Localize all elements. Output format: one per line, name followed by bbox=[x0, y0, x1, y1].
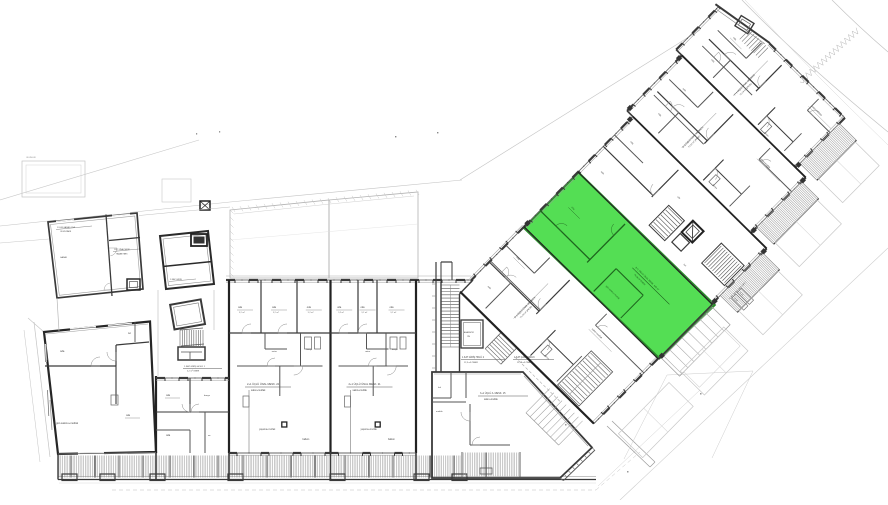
svg-text:2+1 ÜÇLÜ ÜNAL MESK. 22: 2+1 ÜÇLÜ ÜNAL MESK. 22 bbox=[247, 382, 280, 386]
svg-text:oda: oda bbox=[166, 394, 171, 397]
svg-text:12,5 m² ÖMER: 12,5 m² ÖMER bbox=[464, 361, 478, 364]
svg-text:GARAJ: GARAJ bbox=[60, 256, 67, 259]
svg-text:salon+mutfak: salon+mutfak bbox=[251, 389, 266, 392]
svg-text:balkon: balkon bbox=[388, 439, 395, 441]
svg-text:banyo: banyo bbox=[392, 349, 399, 351]
svg-text:balkon: balkon bbox=[303, 439, 310, 441]
svg-text:oda: oda bbox=[166, 434, 171, 437]
svg-text:oda: oda bbox=[390, 306, 395, 309]
svg-text:9,2 m²: 9,2 m² bbox=[362, 311, 368, 314]
svg-text:banyo: banyo bbox=[204, 395, 211, 397]
svg-text:9,2 m²: 9,2 m² bbox=[391, 311, 397, 314]
svg-text:yaşama+mutfak: yaşama+mutfak bbox=[361, 428, 378, 431]
svg-text:ODUNLUK: ODUNLUK bbox=[26, 157, 36, 159]
svg-text:gün.salonu+mutfak: gün.salonu+mutfak bbox=[56, 421, 79, 425]
svg-text:oda: oda bbox=[361, 306, 366, 309]
svg-text:2+1 ÜÇLÜ ÜNAL MESK. 21: 2+1 ÜÇLÜ ÜNAL MESK. 21 bbox=[349, 382, 382, 386]
svg-text:salon+mutfak: salon+mutfak bbox=[484, 398, 499, 401]
svg-text:1.KAT GİRİŞ HOLÜ 1: 1.KAT GİRİŞ HOLÜ 1 bbox=[184, 365, 206, 368]
svg-text:9,2 m²: 9,2 m² bbox=[239, 311, 245, 314]
svg-text:mutfak: mutfak bbox=[436, 410, 443, 413]
svg-text:hol: hol bbox=[438, 387, 441, 389]
svg-text:YAŞAM PARS: YAŞAM PARS bbox=[116, 253, 128, 256]
svg-text:antre: antre bbox=[272, 350, 278, 353]
svg-text:5,2 m² ÖMER: 5,2 m² ÖMER bbox=[187, 370, 200, 373]
svg-text:antre: antre bbox=[365, 350, 371, 353]
svg-text:salon+mutfak: salon+mutfak bbox=[353, 389, 368, 392]
svg-text:ASANSÖR: ASANSÖR bbox=[464, 331, 474, 334]
svg-text:9,2 m²: 9,2 m² bbox=[308, 311, 314, 314]
svg-text:oda: oda bbox=[307, 306, 312, 309]
svg-text:9,2 m²: 9,2 m² bbox=[273, 311, 279, 314]
svg-text:yaşama+mutfak: yaşama+mutfak bbox=[259, 428, 276, 431]
svg-text:ODUN PARS: ODUN PARS bbox=[60, 230, 72, 233]
svg-text:1.KAT GİRİŞ HOLÜ 2: 1.KAT GİRİŞ HOLÜ 2 bbox=[462, 356, 485, 359]
svg-text:oda: oda bbox=[126, 414, 131, 417]
svg-text:oda: oda bbox=[272, 306, 277, 309]
svg-text:3+1 ÜÇLÜ A. MESK. 15: 3+1 ÜÇLÜ A. MESK. 15 bbox=[480, 392, 506, 395]
svg-text:9,2 m²: 9,2 m² bbox=[338, 311, 344, 314]
svg-text:oda: oda bbox=[60, 349, 65, 353]
svg-text:oda: oda bbox=[238, 306, 243, 309]
svg-text:oda: oda bbox=[337, 306, 342, 309]
svg-text:banyo: banyo bbox=[307, 349, 314, 351]
